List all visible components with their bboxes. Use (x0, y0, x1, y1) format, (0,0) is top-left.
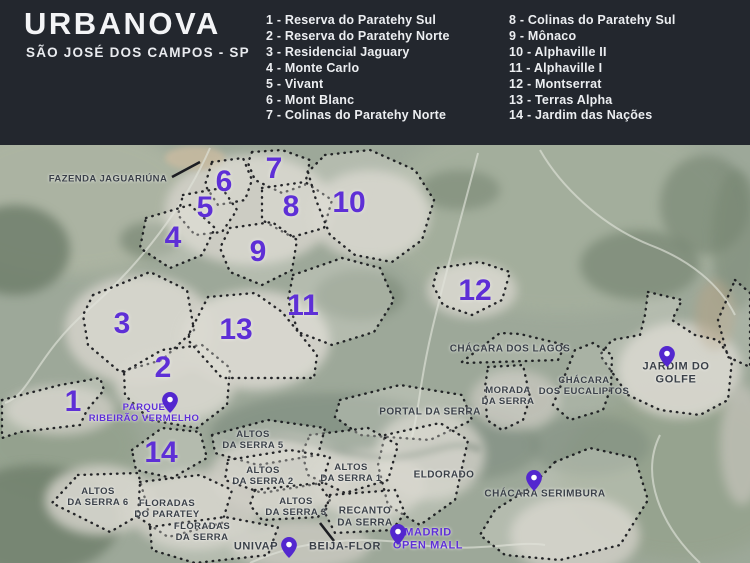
label-beija-flor: BEIJA-FLOR (309, 541, 381, 554)
region-number-6: 6 (216, 167, 233, 197)
label-jardim-do-golfe: JARDIM DO GOLFE (639, 360, 713, 385)
map-pin-parque-ribeirao-vermelho (162, 392, 178, 413)
label-altos-da-serra-5: ALTOS DA SERRA 5 (222, 430, 283, 452)
label-portal-da-serra: PORTAL DA SERRA (379, 406, 481, 418)
label-parque-ribeirao-vermelho: PARQUE RIBEIRÃO VERMELHO (89, 403, 200, 425)
legend-item: 9 - Mônaco (509, 29, 676, 45)
map-pin-chacara-serimbura (526, 470, 542, 491)
label-altos-da-serra-1: ALTOS DA SERRA 1 (320, 463, 381, 485)
legend-item: 8 - Colinas do Paratehy Sul (509, 13, 676, 29)
legend-item: 11 - Alphaville I (509, 61, 676, 77)
legend-column-2: 8 - Colinas do Paratehy Sul 9 - Mônaco 1… (509, 13, 676, 124)
page-title: URBANOVA (24, 6, 221, 42)
region-number-4: 4 (165, 223, 182, 253)
region-number-7: 7 (266, 154, 283, 184)
label-morada-da-serra: MORADA DA SERRA (482, 386, 535, 408)
legend-item: 10 - Alphaville II (509, 45, 676, 61)
legend-item: 5 - Vivant (266, 77, 450, 93)
label-fazenda-jaguariuna: FAZENDA JAGUARIÚNA (49, 175, 168, 186)
label-chacara-serimbura: CHÁCARA SERIMBURA (484, 488, 605, 500)
label-floradas-do-paratey: FLORADAS DO PARATEY (134, 499, 199, 521)
label-chacara-dos-eucaliptos: CHÁCARA DOS EUCALIPTOS (539, 376, 630, 398)
legend-item: 3 - Residencial Jaguary (266, 45, 450, 61)
map-pin-madrid-open-mall (390, 524, 406, 545)
label-univap: UNIVAP (234, 541, 278, 554)
legend-item: 6 - Mont Blanc (266, 93, 450, 109)
legend-item: 12 - Montserrat (509, 77, 676, 93)
satellite-map: 1 2 3 4 5 6 7 8 9 10 11 12 13 14 FAZENDA… (0, 145, 750, 563)
label-altos-da-serra-3: ALTOS DA SERRA 3 (265, 497, 326, 519)
region-number-11: 11 (287, 291, 319, 321)
legend-item: 4 - Monte Carlo (266, 61, 450, 77)
legend-column-1: 1 - Reserva do Paratehy Sul 2 - Reserva … (266, 13, 450, 124)
region-number-10: 10 (332, 188, 365, 218)
region-number-5: 5 (197, 193, 214, 223)
region-number-12: 12 (458, 276, 491, 306)
header: URBANOVA SÃO JOSÉ DOS CAMPOS - SP 1 - Re… (0, 0, 750, 145)
region-number-1: 1 (65, 387, 82, 417)
legend-item: 13 - Terras Alpha (509, 93, 676, 109)
label-recanto-da-serra: RECANTO DA SERRA (337, 506, 392, 529)
label-chacara-dos-lagos: CHÁCARA DOS LAGOS (450, 343, 571, 355)
region-number-9: 9 (250, 237, 267, 267)
legend-item: 1 - Reserva do Paratehy Sul (266, 13, 450, 29)
legend-item: 2 - Reserva do Paratehy Norte (266, 29, 450, 45)
page-subtitle: SÃO JOSÉ DOS CAMPOS - SP (26, 45, 250, 60)
region-number-3: 3 (114, 309, 131, 339)
urbanova-map-infographic: URBANOVA SÃO JOSÉ DOS CAMPOS - SP 1 - Re… (0, 0, 750, 563)
legend-item: 7 - Colinas do Paratehy Norte (266, 108, 450, 124)
region-number-8: 8 (283, 192, 300, 222)
region-number-14: 14 (144, 438, 177, 468)
label-floradas-da-serra: FLORADAS DA SERRA (174, 522, 230, 544)
legend-item: 14 - Jardim das Nações (509, 108, 676, 124)
label-altos-da-serra-6: ALTOS DA SERRA 6 (67, 487, 128, 509)
region-number-13: 13 (219, 315, 252, 345)
label-altos-da-serra-2: ALTOS DA SERRA 2 (232, 466, 293, 488)
map-pin-univap (281, 537, 297, 558)
map-pin-jardim-do-golfe (659, 346, 675, 367)
region-number-2: 2 (155, 353, 172, 383)
label-eldorado: ELDORADO (414, 469, 475, 481)
